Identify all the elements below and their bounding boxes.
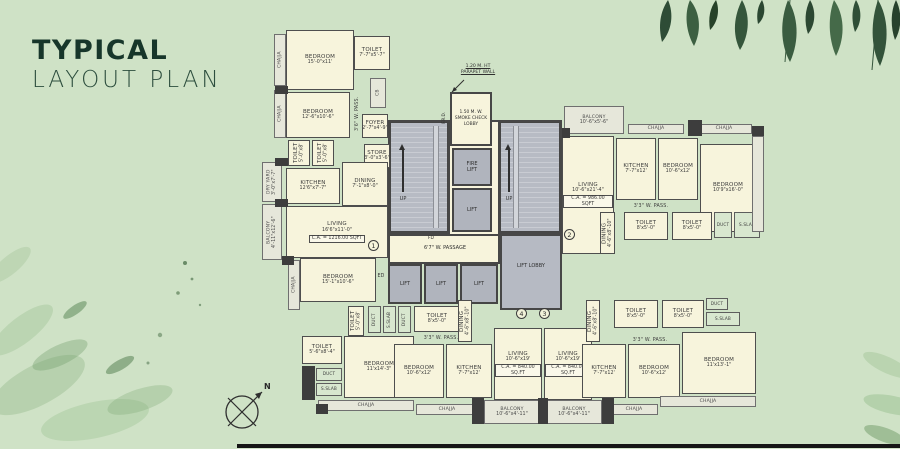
room-toilet: TOILET5'-0"x8': [288, 140, 310, 166]
room-toilet: TOILET5'-0"x8': [312, 140, 334, 166]
room-chajja-strip: CHAJJA: [416, 404, 478, 415]
typical-layout-plan-page: TYPICAL LAYOUT PLAN UP UP FIRE LIFT LIFT…: [0, 0, 900, 449]
room-chajja-strip: CHAJJA: [274, 34, 286, 86]
room-cb-shaft: CB: [370, 78, 386, 108]
room-kitchen: KITCHEN7'-7"x12': [582, 344, 626, 398]
room-bedroom: BEDROOM12'-6"x10'-6": [286, 92, 350, 138]
room-toilet: TOILET8'x5'-0": [662, 300, 704, 328]
wall-pier: [302, 366, 315, 400]
room-toilet: TOILET5'-0"x8': [348, 306, 364, 336]
north-label: N: [264, 382, 271, 391]
room-bedroom: BEDROOM10'-6"x12': [628, 344, 680, 398]
wall-pier: [752, 126, 764, 136]
room-balcony: BALCONY10'-6"x4'-11": [546, 400, 602, 424]
room-bedroom: BEDROOM10'-6"x12': [658, 138, 698, 200]
room-toilet: TOILET8'x5'-0": [414, 306, 460, 332]
wall-pier: [275, 199, 288, 207]
room-side-strip: [752, 136, 764, 232]
room-duct: DUCT: [706, 298, 728, 310]
wall-pier: [538, 398, 548, 424]
room-living: LIVING10'-6"x19'C.A. = 840.00 SQ.FT: [494, 328, 542, 400]
room-kitchen: KITCHEN12'6"x7'-7": [286, 168, 340, 204]
room-s-slab: S.SLAB: [316, 383, 342, 396]
room-dining: DINING4'-6"x8'-10": [458, 300, 472, 342]
room-toilet: TOILET8'x5'-0": [624, 212, 668, 240]
room-toilet: TOILET5'-6"x8'-4": [302, 336, 342, 364]
room-chajja-strip: CHAJJA: [660, 396, 756, 407]
room-dry-yard: DRY YARD3'-0"x7'-7": [262, 162, 282, 202]
unit-number-4: 4: [516, 308, 527, 319]
room-dining: DINING4'-6"x8'-10": [586, 300, 600, 342]
floor-plan-rooms: CHAJJACHAJJABEDROOM15'-0"x11'TOILET7'-7"…: [0, 0, 900, 449]
room-chajja-strip: CHAJJA: [610, 404, 658, 415]
room-chajja-strip: CHAJJA: [628, 124, 684, 134]
room-bedroom: BEDROOM15'-0"x11': [286, 30, 354, 90]
room-chajja-strip: CHAJJA: [274, 90, 286, 138]
room-kitchen: KITCHEN7'-7"x12': [616, 138, 656, 200]
room-duct: DUCT: [714, 212, 732, 238]
wall-pier: [472, 398, 484, 424]
room-s-slab: S.SLAB: [706, 312, 740, 326]
wall-pier: [688, 120, 702, 136]
unit-number-3: 3: [539, 308, 550, 319]
room-toilet: TOILET8'x5'-0": [672, 212, 712, 240]
room-kitchen: KITCHEN7'-7"x12': [446, 344, 492, 398]
room-chajja-strip: CHAJJA: [318, 400, 414, 411]
room-duct: DUCT: [398, 306, 411, 333]
room-chajja-strip: CHAJJA: [288, 260, 300, 310]
room-toilet: TOILET8'x5'-0": [614, 300, 658, 328]
wall-pier: [316, 404, 328, 414]
wall-pier: [275, 158, 288, 166]
wall-pier: [602, 398, 614, 424]
room-dining: DINING4'-6"x8'-10": [600, 212, 615, 254]
room-s-slab: S.SLAB: [383, 306, 396, 333]
room-chajja-strip: CHAJJA: [696, 124, 752, 134]
room-balcony: BALCONY4'-11"x12'-6": [262, 204, 282, 260]
room-toilet: TOILET7'-7"x5'-7": [354, 36, 390, 70]
room-balcony: BALCONY10'-6"x4'-11": [484, 400, 540, 424]
unit-number-2: 2: [564, 229, 575, 240]
room-bedroom: BEDROOM15'-1"x10'-6": [300, 258, 376, 302]
room-passage: 3'3" W. PASS.: [616, 202, 686, 212]
wall-pier: [282, 256, 294, 265]
room-bedroom: BEDROOM10'-6"x12': [394, 344, 444, 398]
room-duct: DUCT: [368, 306, 381, 333]
room-balcony: BALCONY10'-6"x5'-6": [564, 106, 624, 134]
room-dining: DINING7'-1"x8'-0": [342, 162, 388, 206]
room-bedroom: BEDROOM11'x13'-1": [682, 332, 756, 394]
wall-pier: [562, 128, 570, 138]
room-exit-door-label: ED: [374, 272, 388, 281]
room-duct: DUCT: [316, 368, 342, 381]
wall-pier: [275, 86, 288, 94]
room-foyer: FOYER2'-7"x4'-9": [362, 114, 388, 138]
bottom-edge-line: [237, 444, 900, 448]
unit-number-1: 1: [368, 240, 379, 251]
